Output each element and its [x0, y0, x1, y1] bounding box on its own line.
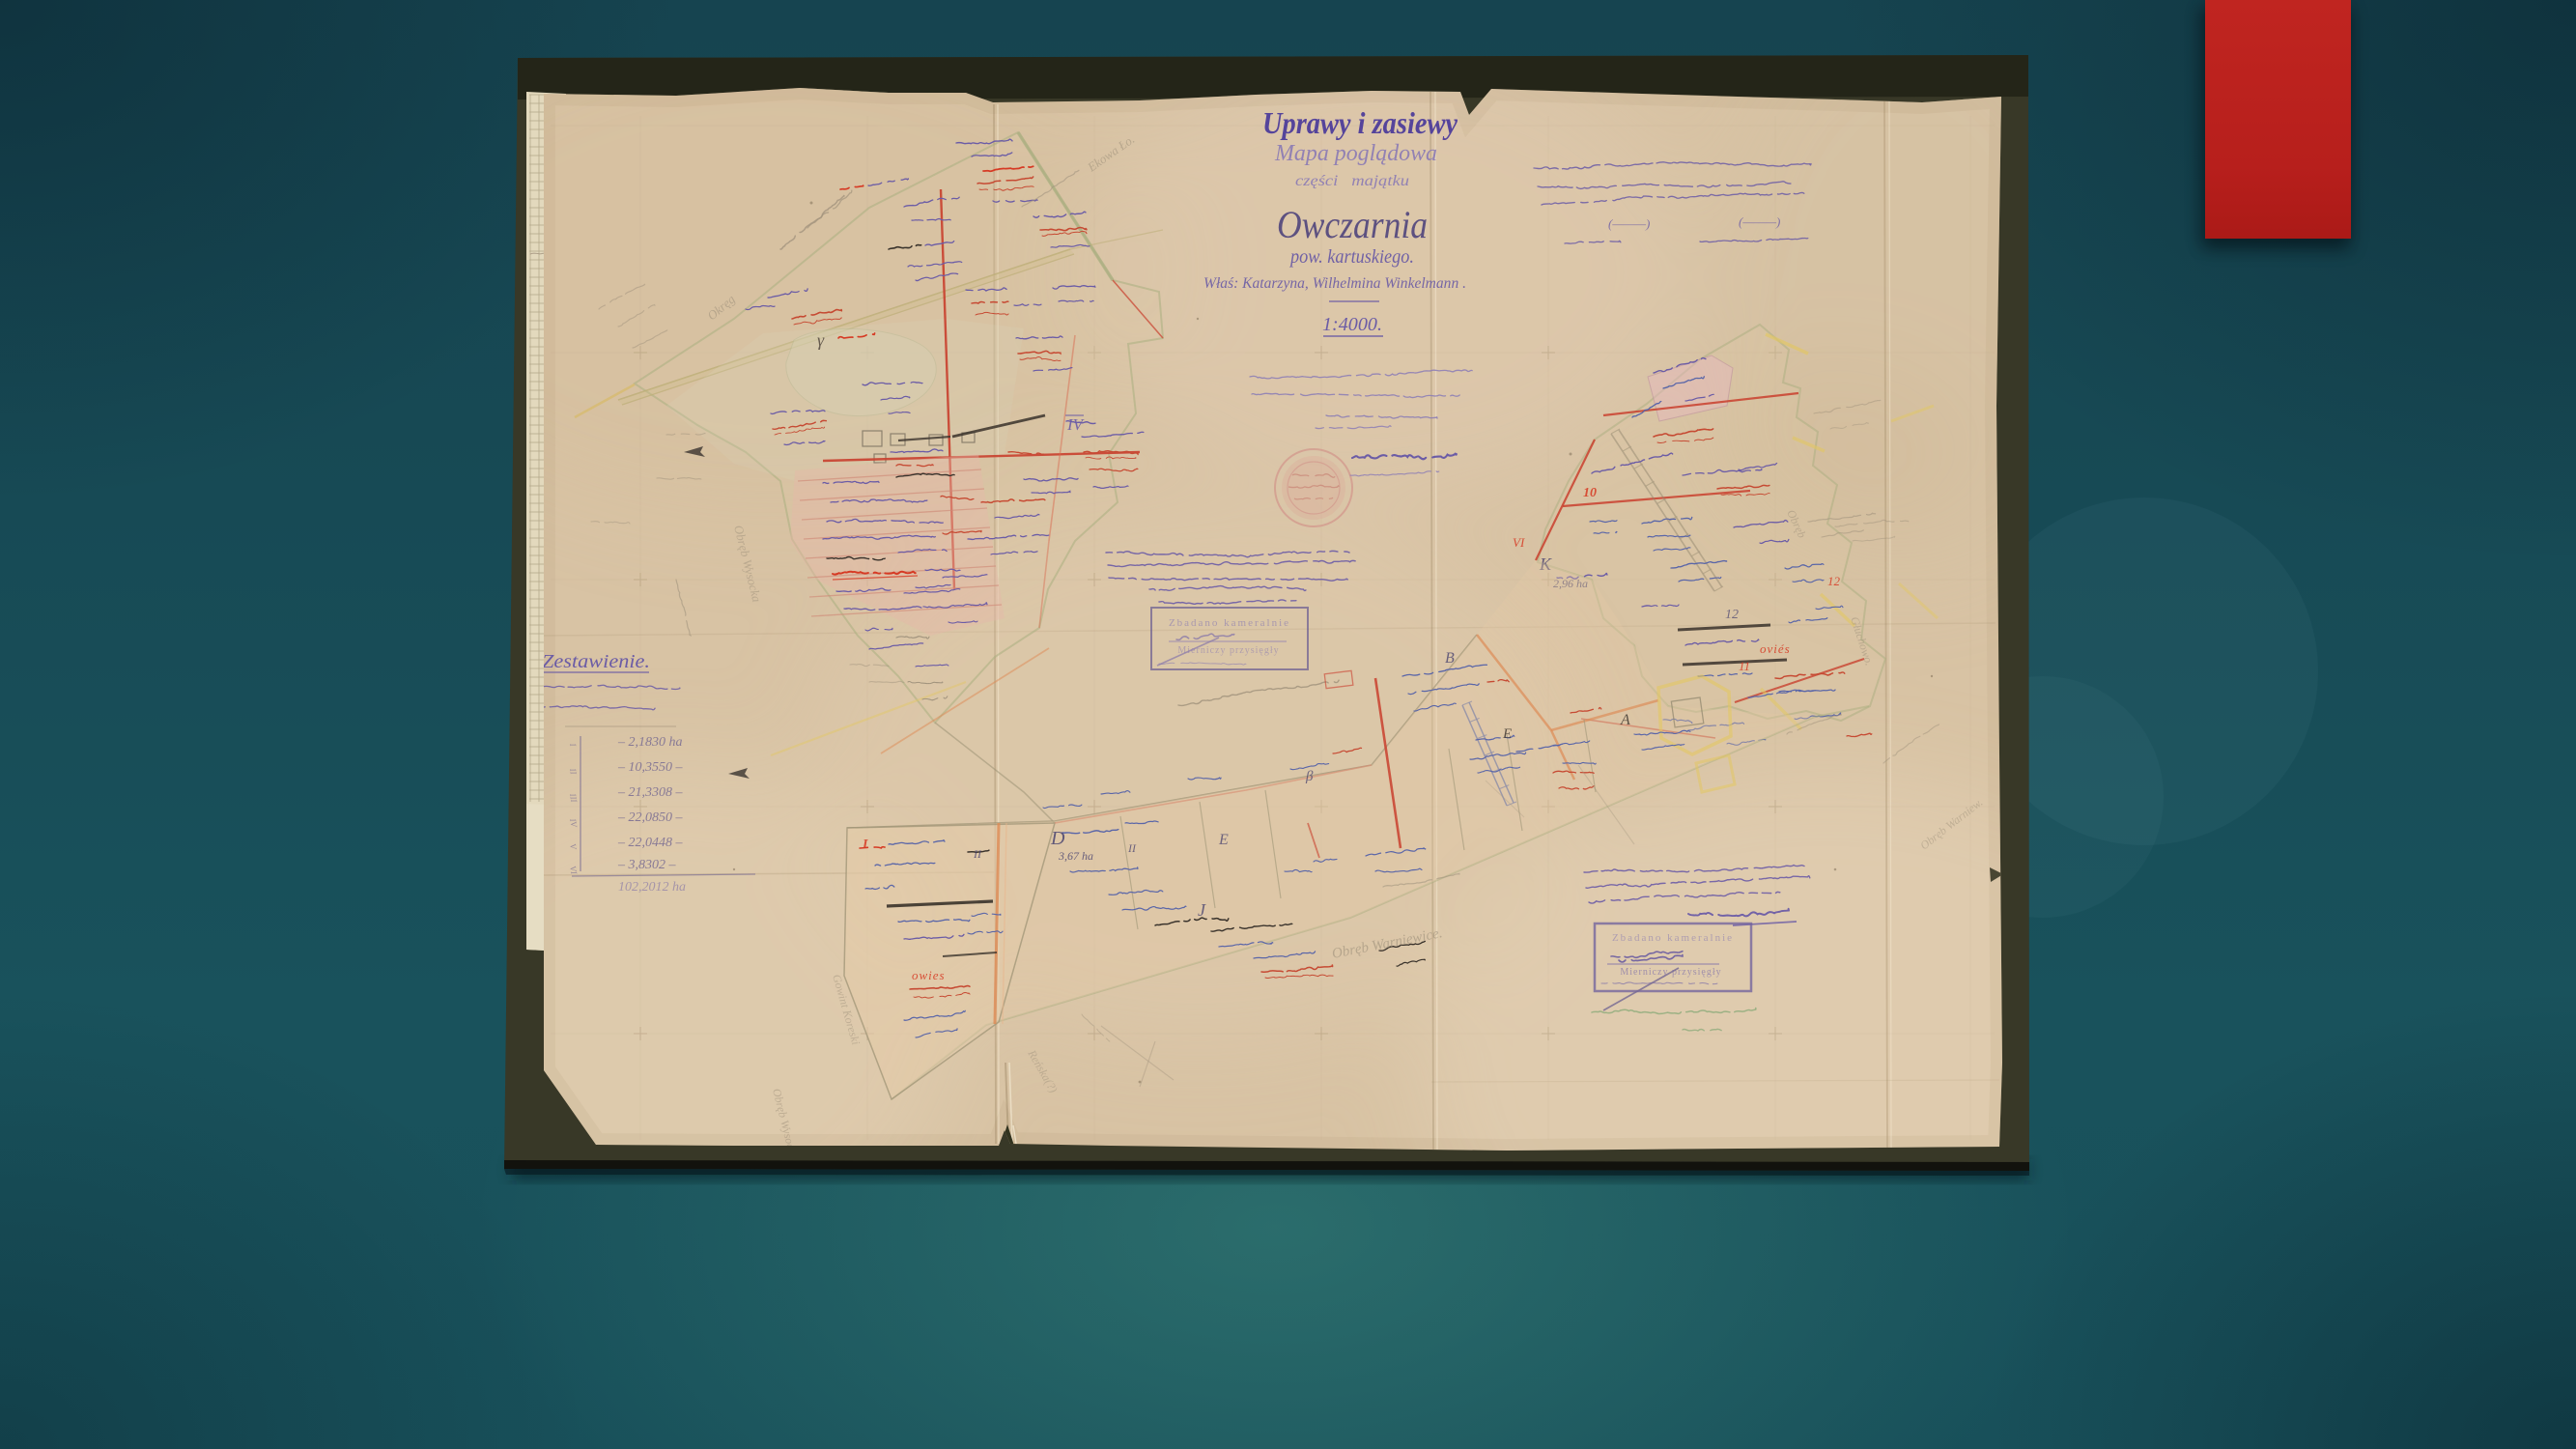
svg-text:12: 12: [1725, 608, 1739, 622]
svg-text:11: 11: [1739, 659, 1750, 673]
svg-text:owies: owies: [912, 968, 946, 982]
svg-text:(———): (———): [1608, 216, 1650, 231]
svg-text:oviés: oviés: [1760, 641, 1791, 656]
svg-text:E: E: [1502, 726, 1512, 742]
svg-text:IV: IV: [1066, 415, 1086, 434]
svg-text:części majątku: części majątku: [1295, 173, 1409, 189]
svg-text:Uprawy i zasiewy: Uprawy i zasiewy: [1262, 105, 1458, 140]
svg-text:J: J: [1198, 900, 1206, 920]
svg-text:γ: γ: [817, 330, 825, 350]
svg-text:12: 12: [1827, 574, 1841, 588]
svg-text:E: E: [1218, 832, 1229, 848]
svg-text:I: I: [862, 838, 868, 852]
svg-text:– 21,3308 –: – 21,3308 –: [617, 785, 684, 800]
svg-text:Zestawienie.: Zestawienie.: [542, 651, 650, 672]
svg-text:D: D: [1050, 828, 1065, 849]
svg-text:Owczarnia: Owczarnia: [1277, 203, 1428, 246]
svg-text:Zbadano kameralnie: Zbadano kameralnie: [1612, 932, 1734, 944]
svg-text:A: A: [1620, 712, 1630, 728]
svg-text:(———): (———): [1739, 214, 1780, 229]
svg-text:– 10,3550 –: – 10,3550 –: [617, 760, 684, 775]
svg-text:B: B: [1445, 650, 1455, 667]
svg-text:10: 10: [1583, 486, 1597, 500]
svg-text:VI: VI: [1513, 535, 1525, 550]
svg-text:Mierniczy przysięgły: Mierniczy przysięgły: [1177, 645, 1279, 656]
svg-text:– 22,0850 –: – 22,0850 –: [617, 810, 684, 825]
svg-text:Właś: Katarzyna, Wilhelmina Wi: Właś: Katarzyna, Wilhelmina Winkelmann .: [1203, 275, 1466, 292]
svg-text:– 3,8302 –: – 3,8302 –: [617, 858, 677, 872]
svg-text:pow. kartuskiego.: pow. kartuskiego.: [1288, 246, 1414, 268]
svg-text:3,67 ha: 3,67 ha: [1058, 849, 1093, 863]
svg-text:II: II: [973, 847, 982, 861]
svg-text:1:4000.: 1:4000.: [1322, 314, 1382, 335]
svg-text:β: β: [1305, 769, 1314, 784]
svg-text:Mapa poglądowa: Mapa poglądowa: [1274, 141, 1437, 166]
svg-text:II: II: [1127, 841, 1137, 855]
svg-text:– 22,0448 –: – 22,0448 –: [617, 836, 684, 850]
svg-text:102,2012 ha: 102,2012 ha: [618, 880, 686, 895]
svg-text:Zbadano kameralnie: Zbadano kameralnie: [1169, 617, 1290, 629]
svg-text:– 2,1830 ha: – 2,1830 ha: [617, 735, 683, 750]
